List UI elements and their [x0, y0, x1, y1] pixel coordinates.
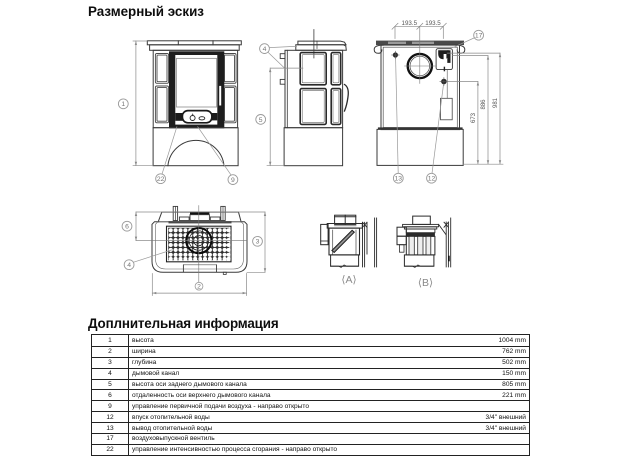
svg-text:22: 22: [157, 176, 165, 183]
svg-text:3: 3: [256, 239, 260, 246]
svg-text:981: 981: [493, 97, 499, 108]
svg-text:673: 673: [471, 112, 477, 123]
svg-text:13: 13: [395, 176, 403, 183]
svg-text:⟨B⟩: ⟨B⟩: [418, 277, 433, 289]
svg-text:193.5: 193.5: [425, 20, 441, 27]
svg-text:17: 17: [475, 33, 483, 40]
svg-text:12: 12: [428, 176, 436, 183]
svg-text:6: 6: [125, 224, 129, 231]
svg-text:9: 9: [231, 177, 235, 184]
svg-text:2: 2: [197, 284, 201, 291]
svg-text:⟨A⟩: ⟨A⟩: [341, 274, 356, 286]
svg-text:5: 5: [259, 117, 263, 124]
svg-text:886: 886: [481, 99, 487, 110]
svg-text:4: 4: [263, 46, 267, 53]
svg-text:1: 1: [121, 101, 125, 108]
svg-text:193.5: 193.5: [402, 20, 418, 27]
svg-text:4: 4: [127, 262, 131, 269]
